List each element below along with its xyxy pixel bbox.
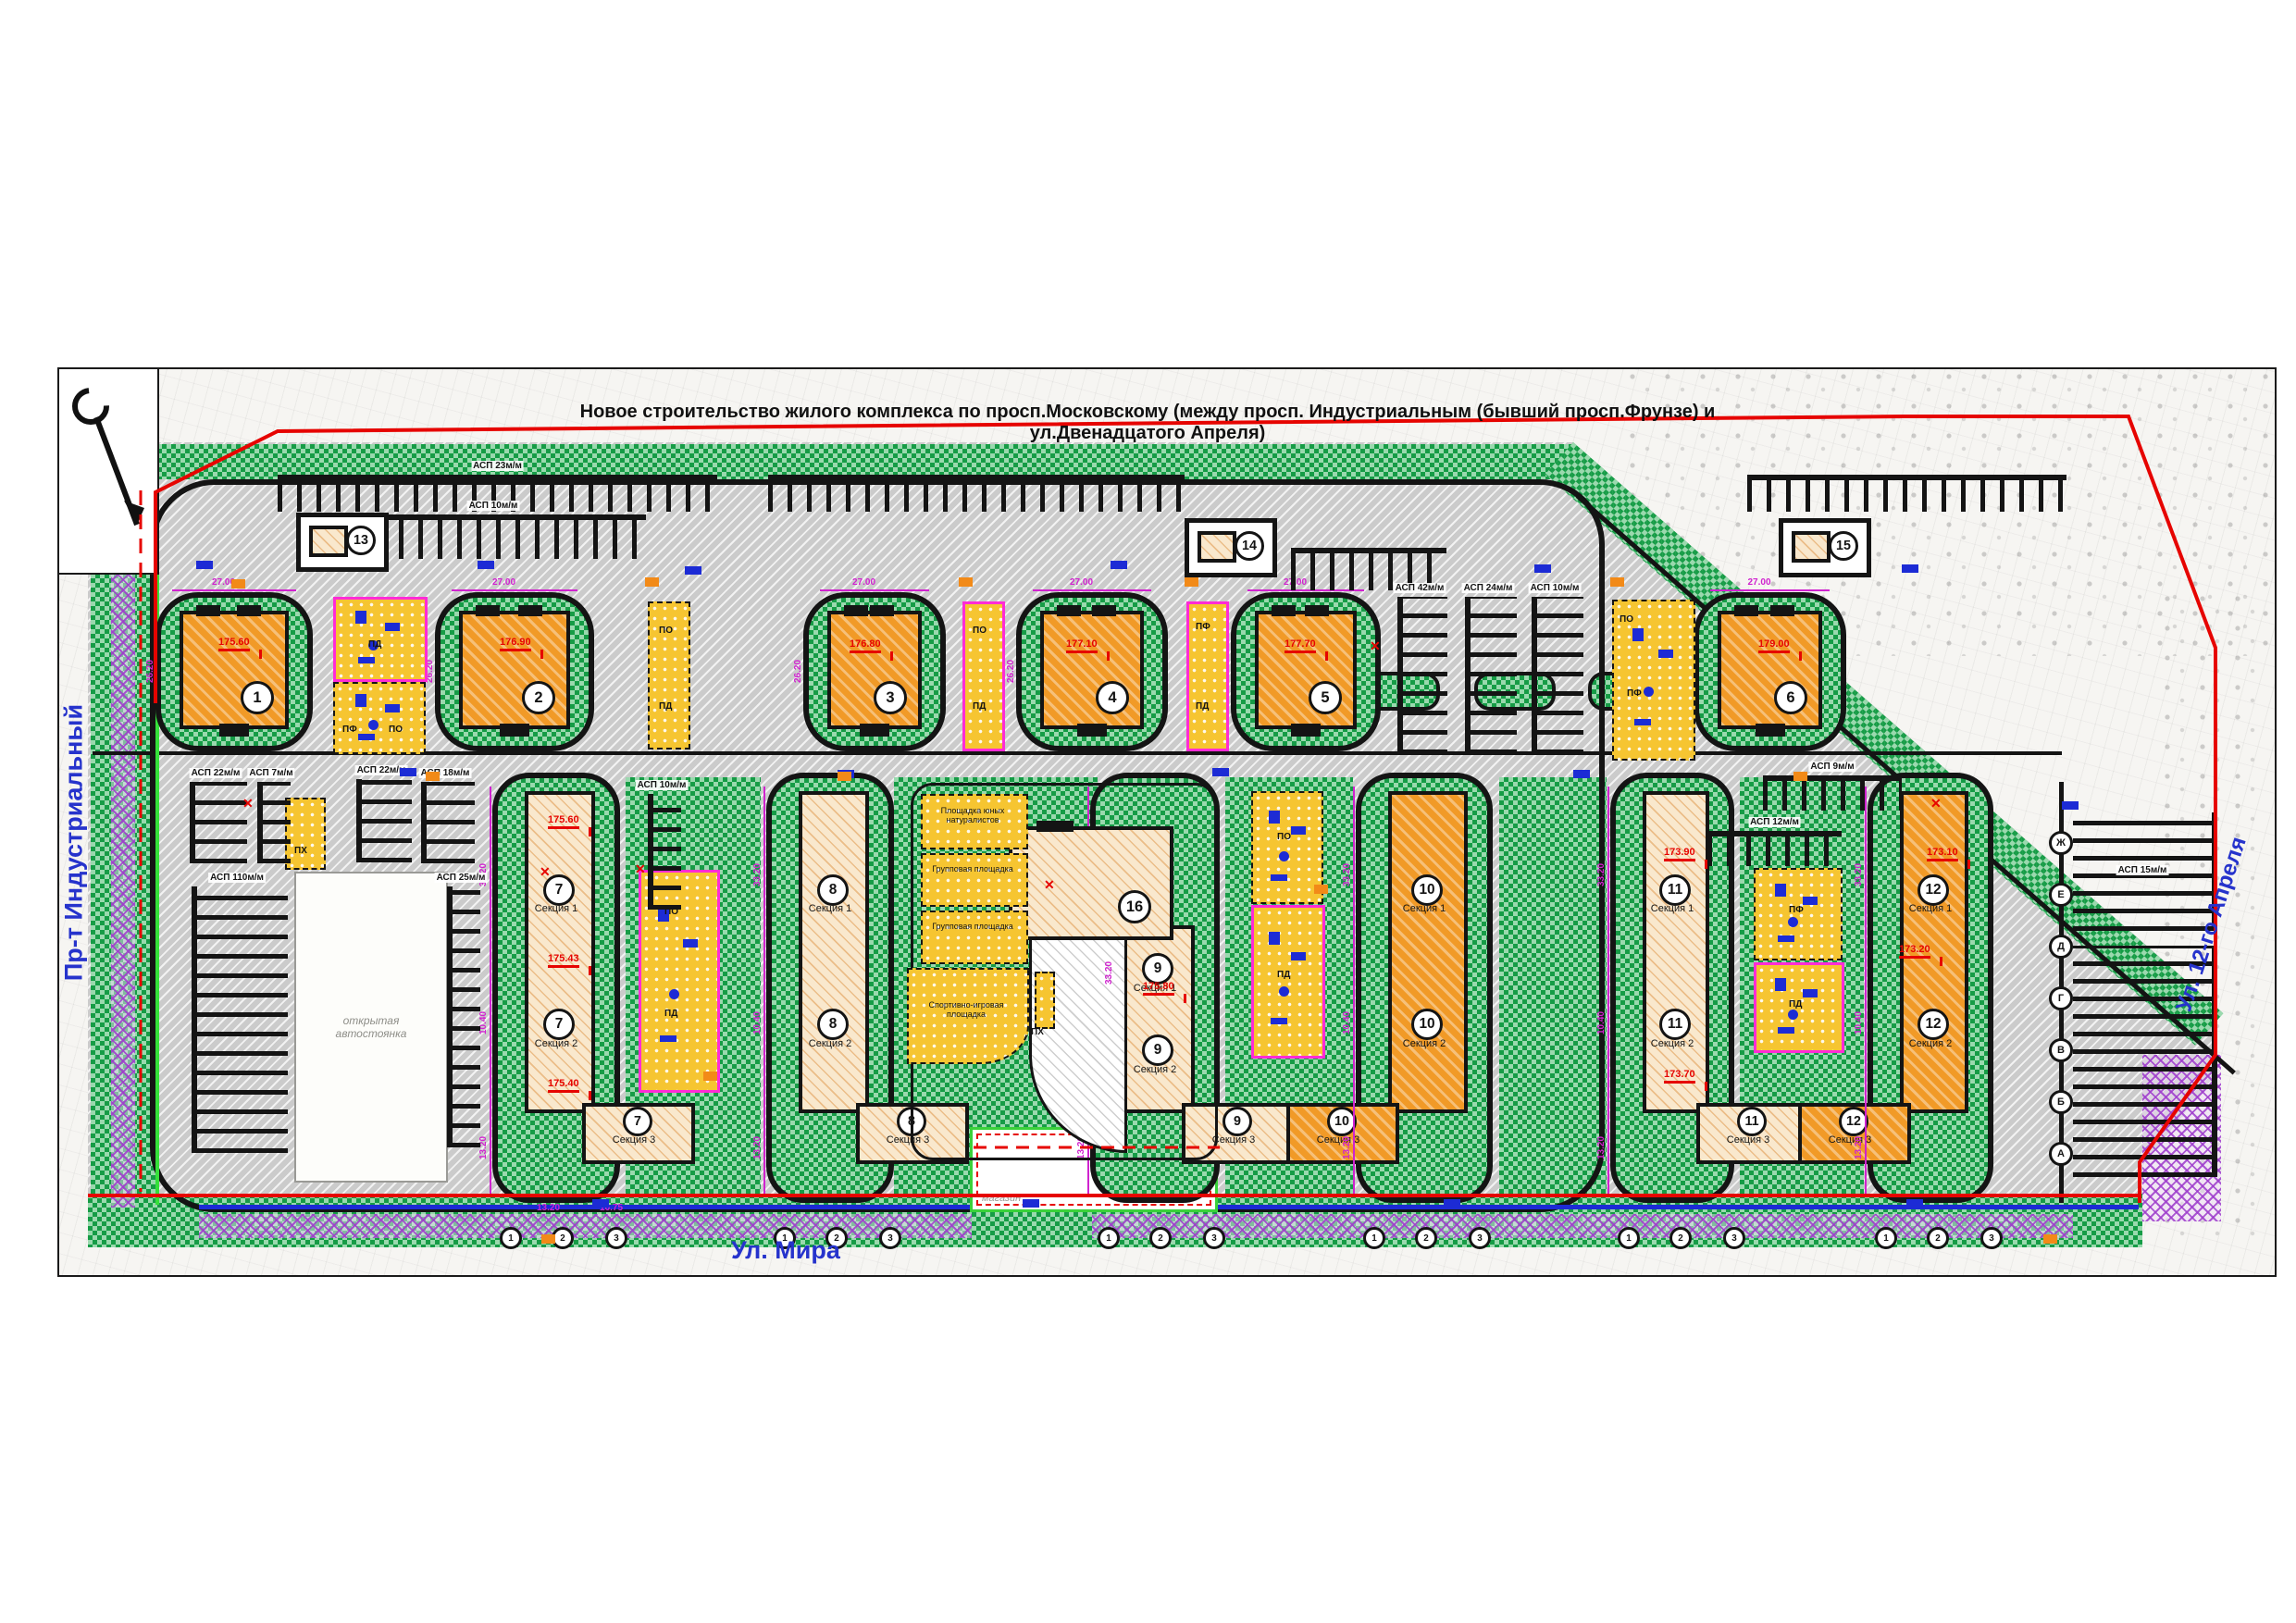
- parking-stalls: [190, 782, 247, 863]
- playground-equipment-icon: [355, 611, 366, 624]
- entrance-marker-blue: [1212, 768, 1229, 776]
- playground-equipment-icon: [1778, 935, 1794, 942]
- elevation-tick: [589, 827, 591, 836]
- building-number: 12: [1917, 874, 1949, 906]
- playground-name-label: Групповая площадка: [924, 865, 1022, 874]
- parking-stalls: [1397, 597, 1447, 754]
- parking-capacity-label: АСП 25м/м: [435, 873, 488, 883]
- elevation-tick: [540, 650, 543, 659]
- playground-type-label: ПХ: [294, 846, 307, 856]
- playground-type-label: ПО: [389, 725, 403, 735]
- playground-type-label: ПО: [1277, 832, 1291, 842]
- playground-type-label: ПФ: [1789, 905, 1804, 915]
- playground-type-label: ПД: [659, 701, 672, 712]
- tower-roof-notch: [1057, 605, 1081, 616]
- curb-line-green: [155, 490, 159, 1205]
- elevation-tick: [1705, 1082, 1707, 1091]
- dimension-line: [1033, 589, 1151, 591]
- building-number: 10: [1411, 1009, 1443, 1040]
- access-marker-orange: [703, 1072, 717, 1081]
- axis-number: 3: [1980, 1227, 2003, 1249]
- building-number: 8: [817, 1009, 849, 1040]
- entrance-marker-blue: [592, 1199, 609, 1208]
- dimension-label: 33.20: [752, 863, 763, 886]
- axis-number: 3: [605, 1227, 627, 1249]
- parking-capacity-label: АСП 15м/м: [2116, 865, 2169, 875]
- playground-equipment-icon: [1271, 1018, 1287, 1024]
- entrance-marker-blue: [196, 561, 213, 569]
- parking-capacity-label: АСП 24м/м: [1462, 583, 1515, 593]
- access-marker-orange: [1185, 577, 1198, 587]
- playground-equipment-icon: [1269, 811, 1280, 824]
- parking-stalls: [1707, 831, 1842, 866]
- access-marker-orange: [1314, 885, 1328, 894]
- transformer-number: 14: [1235, 531, 1264, 561]
- tower-entrance: [219, 724, 249, 737]
- fire-hydrant-marker: ✕: [1044, 877, 1055, 893]
- playground-equipment-icon: [1778, 1027, 1794, 1034]
- dimension-line: [1353, 787, 1355, 1194]
- building-number: 11: [1659, 1009, 1691, 1040]
- elevation-mark: 179.00: [1758, 638, 1790, 653]
- entrance-marker-blue: [1902, 564, 1918, 573]
- playground-equipment-icon: [358, 734, 375, 740]
- axis-letter: А: [2049, 1142, 2073, 1166]
- fire-hydrant-marker: ✕: [635, 861, 646, 877]
- tower-roof-notch: [237, 605, 261, 616]
- playground-equipment-icon: [1788, 1010, 1798, 1020]
- elevation-mark: 176.80: [850, 638, 881, 653]
- building-number: 9: [1222, 1107, 1252, 1136]
- parking-capacity-label: АСП 22м/м: [190, 768, 242, 778]
- axis-number: 3: [879, 1227, 901, 1249]
- section-label: Секция 2: [1637, 1038, 1707, 1049]
- elevation-tick: [1107, 651, 1110, 661]
- entrance-marker-blue: [1534, 564, 1551, 573]
- tower-roof-notch: [476, 605, 500, 616]
- playground-equipment-icon: [660, 1035, 676, 1042]
- residential-slab: [1388, 791, 1468, 1113]
- section-label: Секция 3: [1698, 1134, 1798, 1146]
- elevation-mark: 175.40: [548, 1078, 579, 1093]
- axis-number: 1: [1618, 1227, 1640, 1249]
- residential-slab: [799, 791, 869, 1113]
- playground-equipment-icon: [1644, 687, 1654, 697]
- section-label: Секция 3: [584, 1134, 684, 1146]
- tower-roof-notch: [870, 605, 894, 616]
- playground: [921, 853, 1028, 907]
- elevation-tick: [1967, 860, 1970, 869]
- section-label: Секция 1: [1389, 903, 1459, 914]
- playground-type-label: ПД: [1789, 999, 1802, 1010]
- dimension-line: [172, 589, 296, 591]
- parking-capacity-label: АСП 23м/м: [471, 461, 524, 471]
- kindergarten-building: [1009, 826, 1173, 940]
- playground-type-label: ПД: [664, 1009, 677, 1019]
- dimension-line: [490, 787, 491, 1194]
- playground-name-label: Спортивно-игровая площадка: [910, 1001, 1023, 1020]
- playground-name-label: Групповая площадка: [924, 923, 1022, 932]
- building-number: 8: [817, 874, 849, 906]
- fire-hydrant-marker: ✕: [1370, 638, 1381, 654]
- parking-stalls: [421, 782, 475, 863]
- dimension-label: 33.20: [1854, 863, 1864, 886]
- playground: [962, 601, 1005, 751]
- elevation-mark: 175.60: [218, 637, 250, 651]
- sidewalk-hatch: [1092, 1214, 2073, 1238]
- playground-equipment-icon: [385, 704, 400, 712]
- entrance-marker-blue: [1573, 770, 1590, 778]
- drawing-title: Новое строительство жилого комплекса по …: [500, 402, 1795, 444]
- access-marker-orange: [1610, 577, 1624, 587]
- playground-equipment-icon: [669, 989, 679, 999]
- parking-capacity-label: АСП 7м/м: [247, 768, 294, 778]
- building-number: 7: [623, 1107, 652, 1136]
- playground-equipment-icon: [1291, 952, 1306, 960]
- tower-roof-notch: [1770, 605, 1794, 616]
- playground-equipment-icon: [1634, 719, 1651, 725]
- axis-number: 3: [1469, 1227, 1491, 1249]
- dimension-label: 10.40: [1342, 1011, 1352, 1035]
- building-number: 6: [1774, 681, 1807, 714]
- access-marker-orange: [426, 772, 440, 781]
- access-marker-orange: [231, 579, 245, 588]
- access-marker-orange: [1793, 772, 1807, 781]
- tower-entrance: [1291, 724, 1321, 737]
- open-parking-area: открытая автостоянка: [294, 872, 448, 1183]
- access-marker-orange: [959, 577, 973, 587]
- axis-number: 3: [1203, 1227, 1225, 1249]
- elevation-mark: 173.20: [1899, 944, 1930, 959]
- playground-equipment-icon: [1775, 884, 1786, 897]
- elevation-mark: 173.70: [1664, 1069, 1695, 1084]
- playground-type-label: ПФ: [1196, 622, 1210, 632]
- dimension-line: [1607, 787, 1609, 1194]
- parking-stalls: [768, 475, 1185, 512]
- playground-equipment-icon: [1803, 897, 1818, 905]
- tower-roof-notch: [196, 605, 220, 616]
- dimension-label: 13.20: [1854, 1136, 1864, 1159]
- playground-equipment-icon: [1279, 986, 1289, 997]
- section-label: Секция 3: [1288, 1134, 1388, 1146]
- kindergarten-number: 16: [1118, 890, 1151, 923]
- axis-number: 1: [1875, 1227, 1897, 1249]
- playground-type-label: ПО: [973, 626, 987, 636]
- dimension-label: 10.40: [1854, 1011, 1864, 1035]
- section-label: Секция 1: [795, 903, 865, 914]
- axis-number: 2: [1669, 1227, 1692, 1249]
- playground-equipment-icon: [1788, 917, 1798, 927]
- building-number: 7: [543, 1009, 575, 1040]
- tower-entrance: [1756, 724, 1785, 737]
- street-label-left: Пр-т Индустриальный: [60, 686, 89, 1000]
- playground-type-label: ПХ: [1031, 1027, 1044, 1037]
- section-label: Секция 3: [1800, 1134, 1900, 1146]
- access-marker-orange: [838, 772, 851, 781]
- building-number: 3: [874, 681, 907, 714]
- dimension-label: 27.00: [1748, 577, 1771, 588]
- tower-entrance: [860, 724, 889, 737]
- parking-stalls: [447, 886, 480, 1147]
- dimension-label: 13.20: [1596, 1136, 1607, 1159]
- elevation-mark: 175.43: [548, 953, 579, 968]
- building-number: 10: [1411, 874, 1443, 906]
- building-number: 1: [241, 681, 274, 714]
- parking-capacity-label: АСП 110м/м: [208, 873, 266, 883]
- parking-capacity-label: АСП 10м/м: [467, 501, 520, 511]
- transformer-substation-body: [309, 526, 348, 557]
- playground-equipment-icon: [1658, 650, 1673, 658]
- entrance-marker-blue: [1023, 1199, 1039, 1208]
- dimension-line: [452, 589, 577, 591]
- dimension-line: [763, 787, 765, 1194]
- north-arrow-box: [57, 367, 159, 575]
- tower-entrance: [1077, 724, 1107, 737]
- elevation-mark: 177.70: [1285, 638, 1316, 653]
- playground-name-label: Площадка юных натуралистов: [924, 807, 1022, 825]
- axis-number: 1: [500, 1227, 522, 1249]
- dimension-label: 10.40: [1596, 1011, 1607, 1035]
- elevation-tick: [1799, 651, 1802, 661]
- dimension-label: 13.20: [1342, 1136, 1352, 1159]
- dimension-label: 26.20: [145, 660, 155, 683]
- playground: [1035, 972, 1055, 1029]
- fire-hydrant-marker: ✕: [242, 796, 254, 811]
- axis-letter: Е: [2049, 883, 2073, 907]
- axis-number: 2: [1927, 1227, 1949, 1249]
- section-label: Секция 1: [1895, 903, 1966, 914]
- parking-stalls: [192, 886, 288, 1153]
- entrance-marker-blue: [2062, 801, 2079, 810]
- section-label: Секция 2: [1895, 1038, 1966, 1049]
- dimension-label: 33.20: [1596, 863, 1607, 886]
- tower-roof-notch: [1092, 605, 1116, 616]
- entrance-marker-blue: [400, 768, 416, 776]
- playground-equipment-icon: [1271, 874, 1287, 881]
- entrance-marker-blue: [1906, 1199, 1923, 1208]
- axis-letter: Б: [2049, 1090, 2073, 1114]
- dimension-label: 27.00: [1070, 577, 1093, 588]
- dimension-label: 10.40: [752, 1011, 763, 1035]
- elevation-mark: 173.90: [1664, 847, 1695, 861]
- elevation-tick: [589, 966, 591, 975]
- elevation-mark: 175.80: [1143, 981, 1174, 996]
- playground-type-label: ПД: [973, 701, 986, 712]
- tower-roof-notch: [1272, 605, 1296, 616]
- entrance-marker-blue: [1111, 561, 1127, 569]
- residential-slab: [1643, 791, 1709, 1113]
- dimension-label: 26.20: [793, 660, 803, 683]
- residential-tower: [827, 611, 922, 729]
- parking-capacity-label: АСП 10м/м: [1529, 583, 1582, 593]
- playground-type-label: ПО: [1620, 614, 1633, 625]
- kindergarten-entrance: [1036, 821, 1074, 832]
- playground-equipment-icon: [1803, 989, 1818, 997]
- site-plan: открытая автостоянка магазин 127.0026.20…: [0, 0, 2296, 1623]
- dimension-label: 13.20: [537, 1203, 560, 1213]
- building-number: 5: [1309, 681, 1342, 714]
- section-label: Секция 2: [1389, 1038, 1459, 1049]
- fire-hydrant-marker: ✕: [540, 864, 551, 880]
- tower-roof-notch: [1305, 605, 1329, 616]
- playground-equipment-icon: [1775, 978, 1786, 991]
- dimension-label: 26.20: [1006, 660, 1016, 683]
- section-label: Секция 2: [795, 1038, 865, 1049]
- fire-hydrant-marker: ✕: [1930, 796, 1942, 811]
- parking-stalls: [648, 794, 681, 910]
- playground-type-label: ПО: [659, 626, 673, 636]
- shop-label: магазин: [982, 1193, 1021, 1204]
- parking-stalls: [356, 779, 412, 862]
- dimension-line: [1865, 787, 1867, 1194]
- elevation-tick: [890, 651, 893, 661]
- playground-type-label: ПФ: [342, 725, 357, 735]
- residential-slab: [525, 791, 595, 1113]
- playground-equipment-icon: [385, 623, 400, 631]
- elevation-mark: 173.10: [1927, 847, 1958, 861]
- residential-tower: [180, 611, 289, 729]
- elevation-tick: [1940, 957, 1942, 966]
- residential-tower: [1718, 611, 1822, 729]
- parking-capacity-label: АСП 10м/м: [636, 780, 689, 790]
- section-label: Секция 1: [521, 903, 591, 914]
- tower-roof-notch: [1734, 605, 1758, 616]
- dimension-label: 33.20: [1342, 863, 1352, 886]
- playground-equipment-icon: [358, 657, 375, 663]
- transformer-substation-body: [1792, 531, 1831, 563]
- axis-letter: Ж: [2049, 831, 2073, 855]
- dimension-label: 27.00: [852, 577, 875, 588]
- parking-capacity-label: АСП 12м/м: [1748, 817, 1801, 827]
- playground-equipment-icon: [1279, 851, 1289, 861]
- parking-stalls: [257, 782, 291, 863]
- section-label: Секция 1: [1637, 903, 1707, 914]
- playground-type-label: ПД: [368, 639, 381, 650]
- building-number: 4: [1096, 681, 1129, 714]
- elevation-tick: [589, 1091, 591, 1100]
- elevation-mark: 177.10: [1066, 638, 1098, 653]
- axis-number: 2: [1415, 1227, 1437, 1249]
- section-label: Секция 2: [521, 1038, 591, 1049]
- building-number: 2: [522, 681, 555, 714]
- building-number: 11: [1737, 1107, 1767, 1136]
- playground: [648, 601, 690, 750]
- dimension-label: 13.20: [752, 1136, 763, 1159]
- playground-type-label: ПД: [1277, 970, 1290, 980]
- building-number: 11: [1659, 874, 1691, 906]
- dimension-label: 33.20: [1104, 961, 1114, 985]
- dimension-line: [820, 589, 929, 591]
- open-parking-label: открытая автостоянка: [316, 1014, 427, 1040]
- tower-roof-notch: [844, 605, 868, 616]
- parking-stalls: [1763, 775, 1902, 811]
- elevation-tick: [1184, 994, 1186, 1003]
- playground: [1251, 905, 1325, 1059]
- sidewalk-hatch: [199, 1214, 972, 1238]
- elevation-mark: 175.60: [548, 814, 579, 829]
- axis-letter: В: [2049, 1038, 2073, 1062]
- entrance-marker-blue: [478, 561, 494, 569]
- tower-entrance: [500, 724, 529, 737]
- sidewalk-hatch: [111, 495, 135, 1208]
- dimension-label: 27.00: [492, 577, 515, 588]
- parking-stalls: [1532, 597, 1583, 754]
- parking-capacity-label: АСП 42м/м: [1394, 583, 1446, 593]
- residential-tower: [1255, 611, 1357, 729]
- transformer-number: 13: [346, 526, 376, 555]
- playground-type-label: ПФ: [1627, 688, 1642, 699]
- playground: [333, 682, 426, 754]
- axis-letter: Д: [2049, 935, 2073, 959]
- tower-roof-notch: [518, 605, 542, 616]
- access-marker-orange: [541, 1234, 555, 1244]
- playground: [285, 798, 326, 870]
- elevation-tick: [259, 650, 262, 659]
- entrance-marker-blue: [1444, 1199, 1460, 1208]
- playground-equipment-icon: [683, 939, 698, 948]
- axis-letter: Г: [2049, 986, 2073, 1010]
- residential-tower: [459, 611, 570, 729]
- street-label-bottom: Ул. Мира: [731, 1236, 840, 1265]
- playground: [921, 911, 1028, 964]
- elevation-tick: [1705, 860, 1707, 869]
- parking-capacity-label: АСП 9м/м: [1808, 762, 1855, 772]
- playground-equipment-icon: [1632, 628, 1644, 641]
- north-arrow-icon: [59, 369, 157, 573]
- building-number: 12: [1917, 1009, 1949, 1040]
- elevation-tick: [1325, 651, 1328, 661]
- parking-stalls: [1747, 475, 2066, 512]
- playground-equipment-icon: [1269, 932, 1280, 945]
- axis-number: 1: [1363, 1227, 1385, 1249]
- parking-stalls: [1465, 597, 1517, 754]
- playground-equipment-icon: [355, 694, 366, 707]
- entrance-marker-blue: [685, 566, 701, 575]
- transformer-substation-body: [1198, 531, 1236, 563]
- access-marker-orange: [2043, 1234, 2057, 1244]
- axis-number: 1: [1098, 1227, 1120, 1249]
- residential-tower: [1040, 611, 1144, 729]
- playground-equipment-icon: [1291, 826, 1306, 835]
- axis-number: 2: [1149, 1227, 1172, 1249]
- playground-type-label: ПД: [1196, 701, 1209, 712]
- axis-number: 3: [1723, 1227, 1745, 1249]
- playground: [1251, 791, 1323, 904]
- dimension-line: [1710, 589, 1830, 591]
- elevation-mark: 176.90: [500, 637, 531, 651]
- access-marker-orange: [645, 577, 659, 587]
- transformer-number: 15: [1829, 531, 1858, 561]
